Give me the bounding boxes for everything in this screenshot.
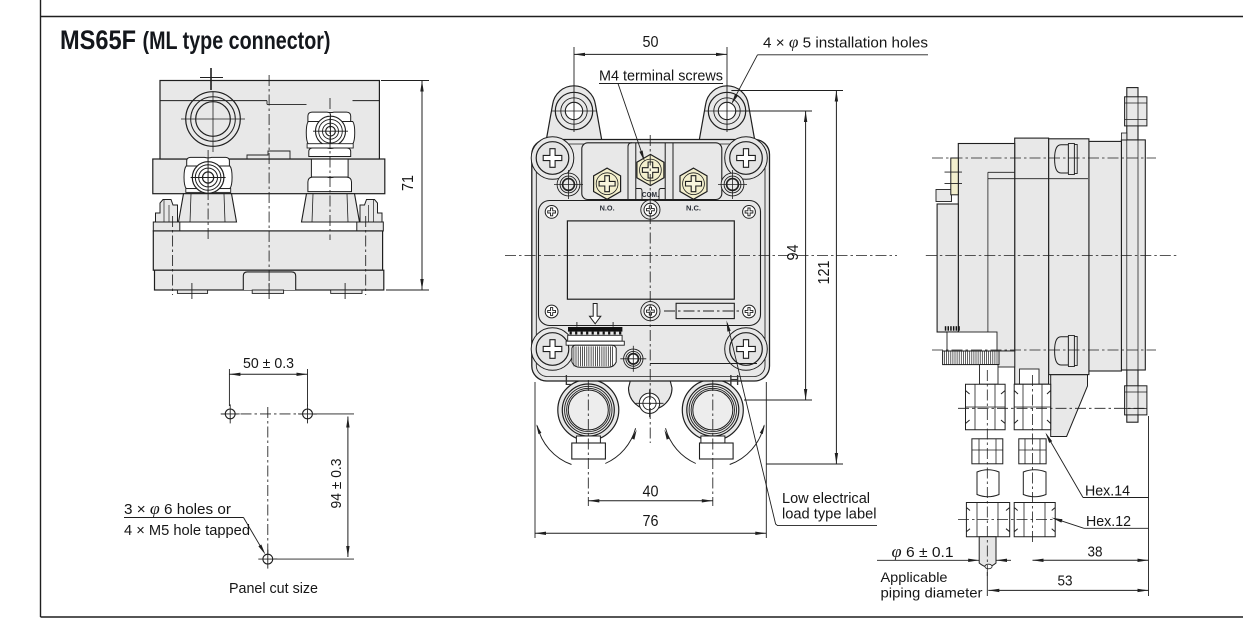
- svg-text:L: L: [565, 373, 573, 389]
- svg-text:N.O.: N.O.: [600, 204, 615, 213]
- svg-text:M4 terminal screws: M4 terminal screws: [599, 68, 723, 85]
- svg-text:piping diameter: piping diameter: [881, 585, 983, 601]
- svg-text:MS65F: MS65F: [60, 25, 136, 55]
- svg-text:94: 94: [785, 244, 802, 260]
- svg-text:71: 71: [400, 175, 417, 191]
- svg-text:H: H: [729, 373, 739, 389]
- svg-text:N.C.: N.C.: [686, 204, 701, 213]
- svg-text:(ML type connector): (ML type connector): [143, 27, 331, 55]
- svg-text:50 ± 0.3: 50 ± 0.3: [243, 355, 294, 372]
- svg-text:load type label: load type label: [782, 507, 877, 523]
- svg-text:3 × φ 6 holes or: 3 × φ 6 holes or: [124, 499, 231, 518]
- svg-text:φ 6 ± 0.1: φ 6 ± 0.1: [892, 542, 954, 561]
- svg-text:Hex.12: Hex.12: [1086, 514, 1131, 530]
- svg-text:4 × φ 5 installation holes: 4 × φ 5 installation holes: [763, 33, 928, 52]
- svg-text:53: 53: [1058, 574, 1073, 590]
- svg-text:94 ± 0.3: 94 ± 0.3: [328, 459, 345, 509]
- svg-text:Panel cut size: Panel cut size: [229, 581, 318, 597]
- svg-text:4 × M5 hole tapped: 4 × M5 hole tapped: [124, 523, 250, 539]
- svg-text:38: 38: [1088, 545, 1103, 561]
- svg-text:76: 76: [643, 513, 659, 530]
- svg-text:Applicable: Applicable: [881, 569, 948, 585]
- svg-text:Low electrical: Low electrical: [782, 491, 870, 507]
- svg-text:40: 40: [643, 484, 659, 501]
- svg-text:50: 50: [643, 34, 659, 51]
- svg-text:121: 121: [816, 261, 833, 285]
